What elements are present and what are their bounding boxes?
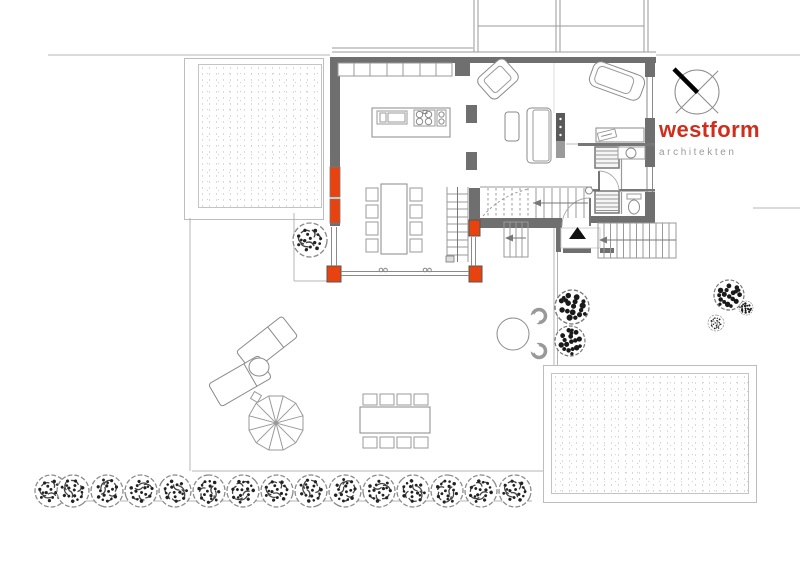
cooktop-small: [437, 110, 446, 126]
stair-newel: [586, 187, 593, 194]
sink-basin: [388, 113, 405, 122]
tree-glyph: [51, 469, 96, 514]
tree-glyph: [494, 470, 536, 512]
garden-furniture: [208, 307, 548, 450]
garden-side-table: [249, 358, 269, 376]
tree-glyph: [390, 468, 435, 513]
toilet-tank: [627, 194, 641, 199]
roof-edge-1: [474, 0, 478, 52]
sofa-seat: [533, 110, 549, 161]
roof-eave-line: [332, 48, 656, 52]
porch-wall-1: [556, 227, 561, 252]
vegetation: [35, 220, 756, 514]
window-post-se: [469, 266, 482, 282]
tree-glyph: [323, 469, 366, 512]
coffee-table: [505, 112, 519, 141]
tree-glyph: [153, 469, 197, 513]
ext-stair-west-arrow-icon: [505, 235, 513, 242]
wall-east-3: [645, 192, 655, 218]
wall-south-wc: [591, 216, 655, 223]
wall-west-cap: [330, 223, 340, 226]
roof-edge-3: [644, 0, 648, 52]
wc-wall-north: [578, 143, 655, 146]
tree-glyph: [290, 220, 330, 260]
porch-wall-3: [600, 248, 614, 253]
stair-cut-line: [483, 189, 528, 216]
window-divider: [472, 237, 476, 266]
stair-b-treads-hidden: [488, 188, 528, 218]
outdoor-dining-table: [360, 407, 430, 433]
wall-east-2: [645, 118, 655, 167]
bush-glyph: [550, 321, 590, 361]
tree-glyph: [429, 473, 464, 508]
chaise-lounge: [587, 60, 647, 103]
logo: westform architekten: [659, 119, 760, 158]
window-east-1: [647, 77, 653, 118]
floor-plan-svg: [0, 0, 800, 564]
closet-upper: [595, 147, 619, 168]
tree-glyph: [120, 470, 161, 511]
wall-pillar-north: [455, 57, 470, 76]
toilet-icon: [629, 200, 640, 214]
logo-architekten: architekten: [659, 148, 760, 158]
tree-glyph: [459, 469, 503, 513]
dining-area: [366, 184, 422, 254]
logo-westform: westform: [659, 119, 760, 141]
porch-wall-2: [563, 248, 591, 253]
tree-glyph: [87, 471, 127, 511]
wc-door-swing: [599, 171, 619, 191]
washbasin-counter: [618, 147, 645, 159]
tree-glyph: [220, 468, 265, 513]
window-south-glass: [341, 272, 469, 276]
wall-pillar-mid-1: [466, 105, 477, 123]
wall-pillar-mid-2: [466, 152, 477, 170]
kitchen-cabinet-row: [338, 63, 452, 76]
dining-table: [381, 184, 407, 254]
faucet-icon: [380, 113, 386, 122]
bistro-table: [497, 318, 529, 350]
stair-direction-arrow-icon: [533, 200, 541, 207]
entrance-arrow-icon: [569, 227, 586, 239]
orange-wall-segment-2: [330, 199, 340, 223]
window-post-sw: [327, 266, 341, 282]
wc-wall-mid-b: [619, 189, 655, 192]
floor-plan-canvas: westform architekten: [0, 0, 800, 564]
tree-glyph: [707, 314, 725, 332]
bistro-chair-2: [525, 339, 548, 360]
window-east-2: [647, 167, 653, 192]
stair-a-start-post: [446, 256, 454, 262]
wall-east-1: [645, 57, 655, 77]
sideboard: [556, 141, 565, 158]
parasol-icon: [249, 392, 303, 450]
window-post-east: [469, 220, 480, 236]
tree-glyph: [258, 472, 296, 510]
wall-north: [330, 57, 656, 63]
tree-glyph: [192, 474, 227, 509]
kitchen: [338, 63, 452, 137]
bistro-chair-1: [525, 307, 548, 328]
closet-lower: [595, 191, 619, 213]
tree-glyph: [360, 472, 397, 509]
wall-entrance: [480, 218, 562, 228]
bush-glyph: [549, 284, 594, 329]
window-west: [332, 227, 337, 266]
roof-outline: [332, 0, 656, 52]
tree-glyph: [290, 470, 333, 513]
orange-wall-segment-1: [330, 167, 340, 197]
armchair: [475, 57, 520, 102]
wall-divider-lower: [469, 188, 480, 220]
